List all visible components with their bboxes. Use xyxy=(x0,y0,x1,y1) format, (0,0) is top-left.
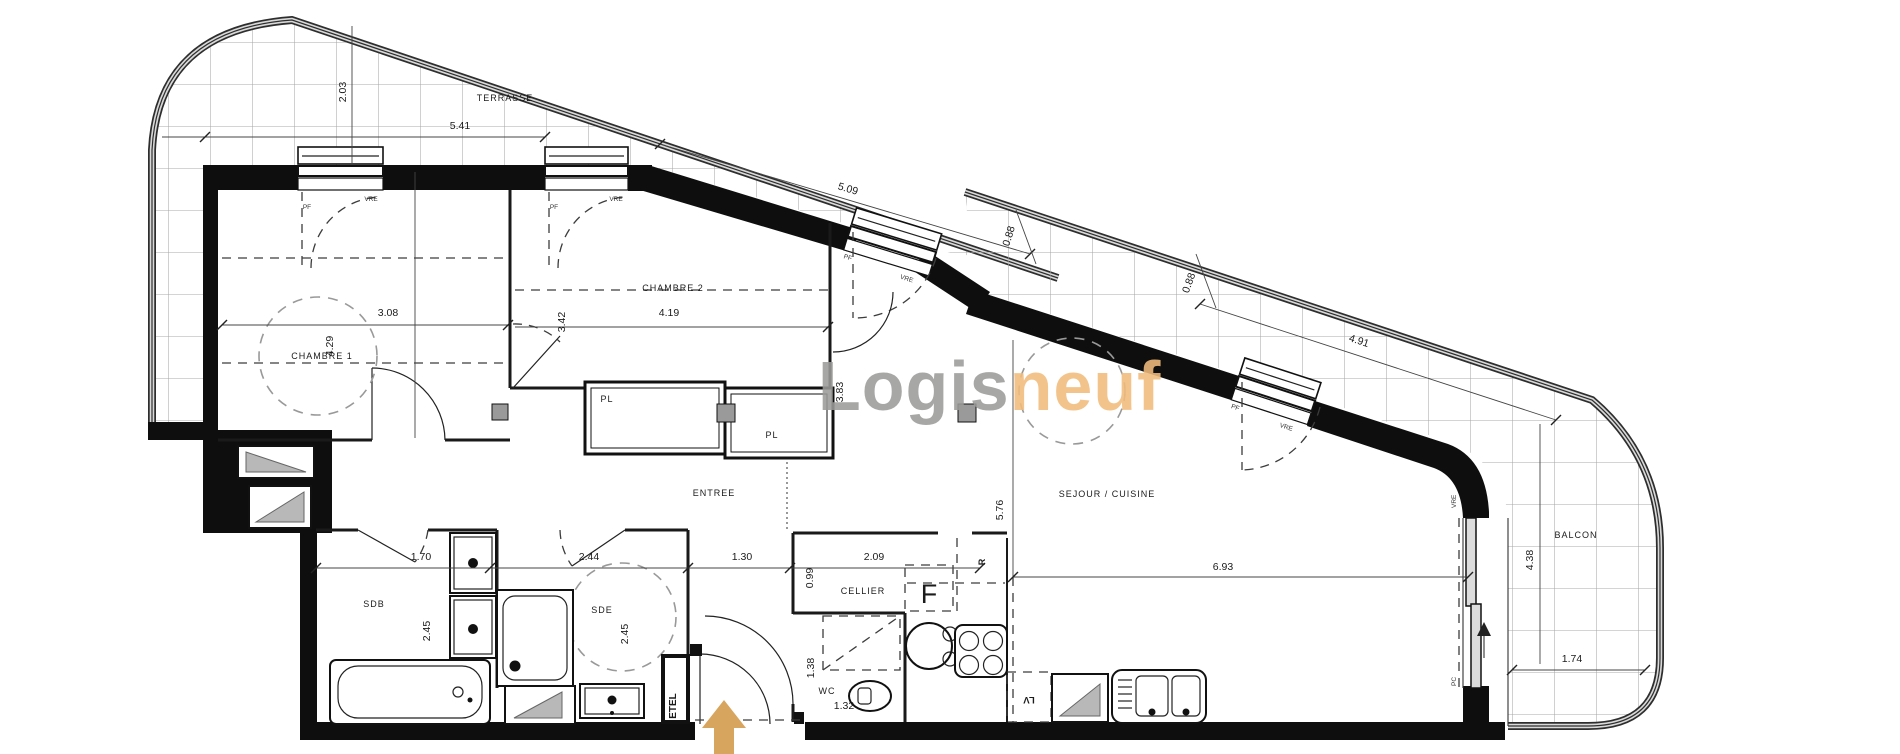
room-label-cellier: CELLIER xyxy=(841,586,886,596)
room-label-chambre1: CHAMBRE 1 xyxy=(291,351,353,361)
dim-541: 5.41 xyxy=(450,120,471,132)
technical-shafts xyxy=(238,446,314,528)
logo-part-orange: neuf xyxy=(1010,347,1162,425)
dim-509: 5.09 xyxy=(836,180,859,197)
dim-132: 1.32 xyxy=(834,700,855,712)
room-label-sejour: SEJOUR / CUISINE xyxy=(1059,489,1156,499)
duct-box xyxy=(717,404,735,422)
room-label-terrasse: TERRASSE xyxy=(477,93,534,103)
bathtub xyxy=(330,660,490,724)
entry-arrow-icon xyxy=(702,700,746,754)
room-label-sdb: SDB xyxy=(363,599,385,609)
pf-tag: PF xyxy=(1230,403,1240,412)
dim-209: 2.09 xyxy=(864,551,885,563)
dim-099: 0.99 xyxy=(804,568,816,589)
dim-244: 2.44 xyxy=(579,551,600,563)
pf-tag: PF xyxy=(303,204,311,211)
dim-174: 1.74 xyxy=(1562,653,1583,665)
dim-170: 1.70 xyxy=(411,551,432,563)
hob xyxy=(955,625,1007,677)
duct-box xyxy=(492,404,508,420)
vre-tag: VRE xyxy=(899,274,914,285)
dim-245b: 2.45 xyxy=(619,624,631,645)
vre-tag: VRE xyxy=(364,196,378,203)
fridge-label: F xyxy=(921,579,938,609)
dim-130: 1.30 xyxy=(732,551,753,563)
hob-label: R xyxy=(977,558,987,565)
dim-576: 5.76 xyxy=(994,500,1006,521)
pc-tag: PC xyxy=(1451,677,1458,686)
logisneuf-logo: Logisneuf xyxy=(818,347,1161,425)
room-label-balcon: BALCON xyxy=(1554,530,1597,540)
pf-tag: PF xyxy=(550,204,558,211)
dim-342: 3.42 xyxy=(556,312,568,333)
washbasin-cabinets xyxy=(450,533,496,658)
floor-plan-canvas: PF VRE PF VRE VRE PC xyxy=(0,0,1900,754)
bay-window-balcony xyxy=(1459,518,1491,688)
wc-fixtures xyxy=(823,616,900,711)
terrace2-balcony-area xyxy=(965,192,1660,726)
dim-138: 1.38 xyxy=(805,658,817,679)
sde-vanity xyxy=(580,684,644,718)
vre-tag: VRE xyxy=(1451,494,1458,508)
room-label-sde: SDE xyxy=(591,605,613,615)
logo-part-gray: Logis xyxy=(818,347,1010,425)
dim-308: 3.08 xyxy=(378,307,399,319)
kitchen-fixtures xyxy=(905,565,1206,723)
dim-693: 6.93 xyxy=(1213,561,1234,573)
closet-pl2 xyxy=(725,388,833,458)
floor-plan: PF VRE PF VRE VRE PC xyxy=(0,0,1900,754)
room-label-chambre2: CHAMBRE 2 xyxy=(642,283,704,293)
dim-429: 4.29 xyxy=(324,336,336,357)
closet-label-pl1: PL xyxy=(600,394,613,404)
room-label-entree: ENTREE xyxy=(693,488,736,498)
closet-label-pl2: PL xyxy=(765,430,778,440)
vre-tag: VRE xyxy=(1279,422,1295,433)
dim-203: 2.03 xyxy=(337,82,349,103)
dim-245a: 2.45 xyxy=(421,621,433,642)
dim-438: 4.38 xyxy=(1524,550,1536,571)
etel-label: ETEL xyxy=(668,693,679,719)
sdb-cabinet xyxy=(505,686,575,724)
dim-419: 4.19 xyxy=(659,307,680,319)
pf-tag: PF xyxy=(843,253,853,262)
dishwasher-label: LV xyxy=(1023,694,1035,705)
kitchen-sink xyxy=(1112,670,1206,723)
interior-walls xyxy=(218,190,1007,722)
room-label-wc: WC xyxy=(819,686,836,696)
closet-pl1 xyxy=(585,382,725,454)
shower xyxy=(497,590,573,686)
vre-tag: VRE xyxy=(609,196,623,203)
